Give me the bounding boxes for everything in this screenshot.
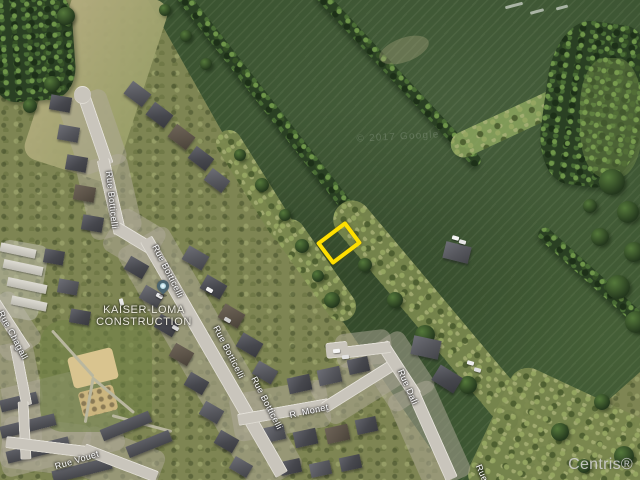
house-roof bbox=[81, 214, 104, 232]
car bbox=[333, 349, 340, 354]
tree-clump-icon bbox=[159, 4, 171, 16]
tree-clump-icon bbox=[551, 423, 569, 441]
house-roof bbox=[188, 146, 215, 171]
house-roof bbox=[204, 168, 231, 193]
place-label-line2: CONSTRUCTION bbox=[96, 316, 192, 328]
house-roof bbox=[339, 454, 362, 472]
cul-de-sac bbox=[74, 86, 91, 104]
tree-clump-icon bbox=[180, 30, 192, 42]
tree-clump-icon bbox=[23, 99, 37, 113]
house-roof bbox=[146, 102, 174, 129]
tree-clump-icon bbox=[625, 311, 640, 333]
field-track-mark bbox=[556, 4, 568, 10]
tree-clump-icon bbox=[591, 228, 609, 246]
tree-clump-icon bbox=[324, 292, 340, 308]
tree-clump-icon bbox=[44, 76, 60, 92]
car bbox=[342, 355, 349, 360]
bright-grass-patch bbox=[580, 58, 640, 178]
tree-clump-icon bbox=[255, 178, 269, 192]
house-roof bbox=[73, 184, 96, 202]
tree-clump-icon bbox=[594, 394, 610, 410]
house-roof bbox=[355, 416, 379, 435]
house-roof bbox=[325, 424, 351, 444]
tree-clump-icon bbox=[583, 199, 597, 213]
house-roof bbox=[57, 278, 79, 295]
tree-clump-icon bbox=[200, 58, 212, 70]
tree-clump-icon bbox=[279, 209, 291, 221]
tree-clump-icon bbox=[624, 242, 640, 262]
house-roof bbox=[293, 428, 319, 448]
house-roof bbox=[309, 460, 332, 478]
house-roof bbox=[442, 241, 471, 264]
tree-clump-icon bbox=[295, 239, 309, 253]
place-label-kaiser-loma: KAISER-LOMA CONSTRUCTION bbox=[96, 304, 192, 328]
field-track-mark bbox=[530, 8, 544, 15]
field-track-mark bbox=[505, 2, 523, 10]
tree-clump-icon bbox=[234, 149, 246, 161]
tree-clump-icon bbox=[312, 270, 324, 282]
tree-clump-icon bbox=[617, 201, 639, 223]
tree-clump-icon bbox=[599, 169, 625, 195]
tree-clump-icon bbox=[57, 7, 75, 25]
tree-clump-icon bbox=[387, 292, 403, 308]
tree-clump-icon bbox=[358, 258, 372, 272]
centris-watermark: Centris® bbox=[568, 456, 633, 474]
place-label-line1: KAISER-LOMA bbox=[96, 304, 192, 316]
satellite-map[interactable]: Rue Botticelli Rue Botticelli Rue Bottic… bbox=[0, 0, 640, 480]
house-roof bbox=[168, 124, 196, 151]
tree-clump-icon bbox=[606, 275, 630, 299]
